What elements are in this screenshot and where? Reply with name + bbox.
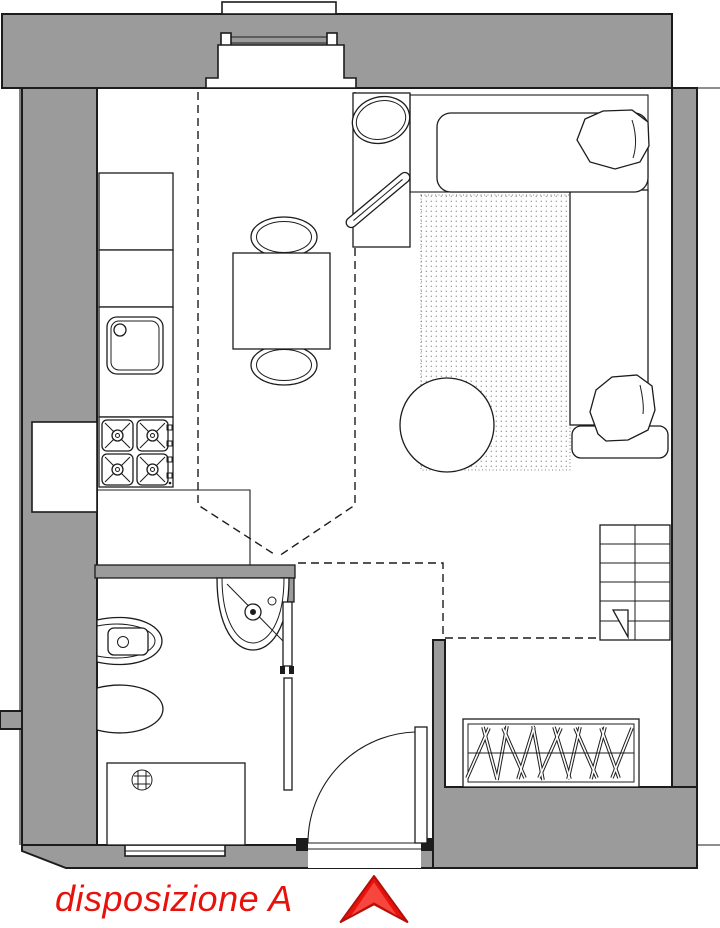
floor-plan [0, 0, 720, 928]
bidet [97, 617, 162, 664]
north-arrow-icon [338, 874, 410, 924]
caption: disposizione A [0, 872, 720, 928]
bottom-window [125, 845, 225, 856]
entry-door [296, 727, 433, 868]
floor-plan-canvas [0, 0, 720, 928]
staircase [600, 525, 670, 640]
kitchen-sink [107, 317, 163, 374]
wall-niche [32, 422, 97, 512]
toilet [97, 685, 163, 733]
round-pouf [400, 378, 494, 472]
storage-cabinet [344, 90, 415, 247]
shower-tray [107, 763, 245, 845]
sliding-door [280, 602, 294, 790]
corner-washbasin [217, 578, 289, 650]
dining-table [233, 253, 330, 349]
wardrobe-rail [463, 719, 639, 787]
gas-stove [99, 417, 173, 487]
plan-title: disposizione A [55, 878, 293, 920]
